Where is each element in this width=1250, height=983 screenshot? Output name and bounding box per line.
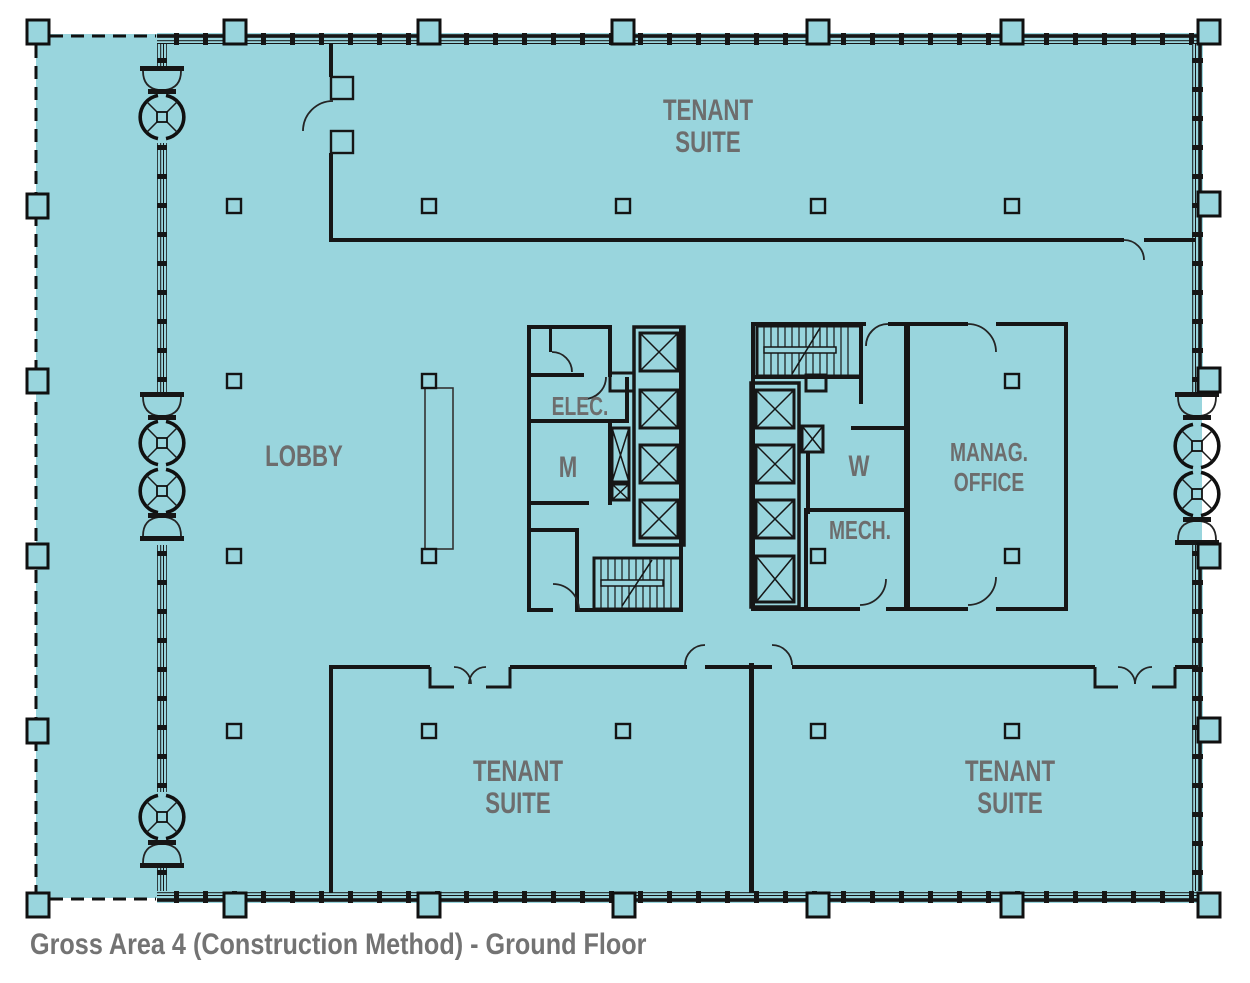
room-label-tenant-suite-top: TENANT SUITE (663, 95, 753, 159)
room-label-line: TENANT (473, 756, 563, 788)
elevator-shaft-icon (756, 500, 794, 538)
column-icon (227, 724, 241, 738)
column-icon (807, 893, 829, 917)
column-icon (1198, 368, 1220, 392)
column-icon (224, 20, 246, 44)
column-icon (616, 724, 630, 738)
column-icon (227, 199, 241, 213)
room-label-tenant-suite-bottom-left: TENANT SUITE (473, 756, 563, 820)
column-icon (422, 199, 436, 213)
column-icon (811, 549, 825, 563)
room-label-men-restroom: M (559, 452, 578, 484)
elevator-shaft-icon (640, 445, 678, 483)
elevator-shaft-icon (640, 390, 678, 428)
column-icon (227, 549, 241, 563)
column-icon (27, 369, 48, 393)
room-label-line: TENANT (965, 756, 1055, 788)
column-icon (616, 199, 630, 213)
elevator-shaft-icon (640, 333, 678, 371)
column-icon (27, 893, 49, 917)
column-icon (1001, 893, 1023, 917)
column-icon (422, 724, 436, 738)
room-label-mech: MECH. (829, 515, 891, 545)
room-label-line: SUITE (473, 788, 563, 820)
lobby-glass-wall (157, 143, 167, 392)
room-label-manag-office: MANAG. OFFICE (950, 437, 1028, 497)
floor-plan-drawing (0, 0, 1250, 983)
column-icon (1005, 199, 1019, 213)
elevator-shaft-icon (756, 445, 794, 483)
column-icon (1198, 20, 1220, 44)
column-icon (27, 20, 49, 44)
room-label-tenant-suite-bottom-right: TENANT SUITE (965, 756, 1055, 820)
column-icon (811, 724, 825, 738)
lobby-glass-wall (157, 868, 167, 891)
column-icon (612, 20, 634, 44)
lobby-glass-wall (157, 44, 167, 66)
column-icon (1198, 718, 1220, 742)
column-icon (27, 719, 48, 743)
drawing-title: Gross Area 4 (Construction Method) - Gro… (30, 928, 646, 962)
column-icon (224, 893, 246, 917)
room-label-elec: ELEC. (552, 391, 609, 421)
column-icon (27, 544, 48, 568)
service-shaft-icon (802, 426, 823, 452)
floor-plan: TENANT SUITE LOBBY ELEC. M W MANAG. OFFI… (0, 0, 1250, 983)
room-label-line: TENANT (663, 95, 753, 127)
elevator-shaft-icon (756, 556, 794, 602)
column-icon (807, 20, 829, 44)
suite-partition-wall (749, 663, 754, 893)
room-label-women-restroom: W (849, 451, 870, 483)
curtain-wall-top (157, 33, 1198, 45)
column-icon (1005, 549, 1019, 563)
elevator-shaft-icon (640, 500, 678, 538)
lobby-glass-wall (157, 545, 167, 792)
column-icon (1198, 893, 1220, 917)
room-label-lobby: LOBBY (265, 441, 343, 473)
column-icon (1198, 192, 1220, 216)
column-icon (27, 194, 48, 218)
elevator-shaft-icon (756, 390, 794, 428)
service-shaft-icon (612, 428, 629, 500)
manag-office-wall (904, 322, 910, 611)
room-label-line: SUITE (663, 127, 753, 159)
column-icon (1005, 724, 1019, 738)
column-icon (418, 20, 440, 44)
column-icon (227, 374, 241, 388)
curtain-wall-bottom (157, 891, 1198, 903)
column-icon (422, 549, 436, 563)
column-icon (613, 893, 635, 917)
column-icon (1005, 374, 1019, 388)
column-icon (1001, 20, 1023, 44)
column-icon (422, 374, 436, 388)
curtain-wall-right-upper (1192, 44, 1203, 392)
room-label-line: SUITE (965, 788, 1055, 820)
room-label-line: MANAG. (950, 437, 1028, 467)
room-label-line: OFFICE (950, 467, 1028, 497)
column-icon (811, 199, 825, 213)
column-icon (418, 893, 440, 917)
column-icon (1198, 544, 1220, 568)
